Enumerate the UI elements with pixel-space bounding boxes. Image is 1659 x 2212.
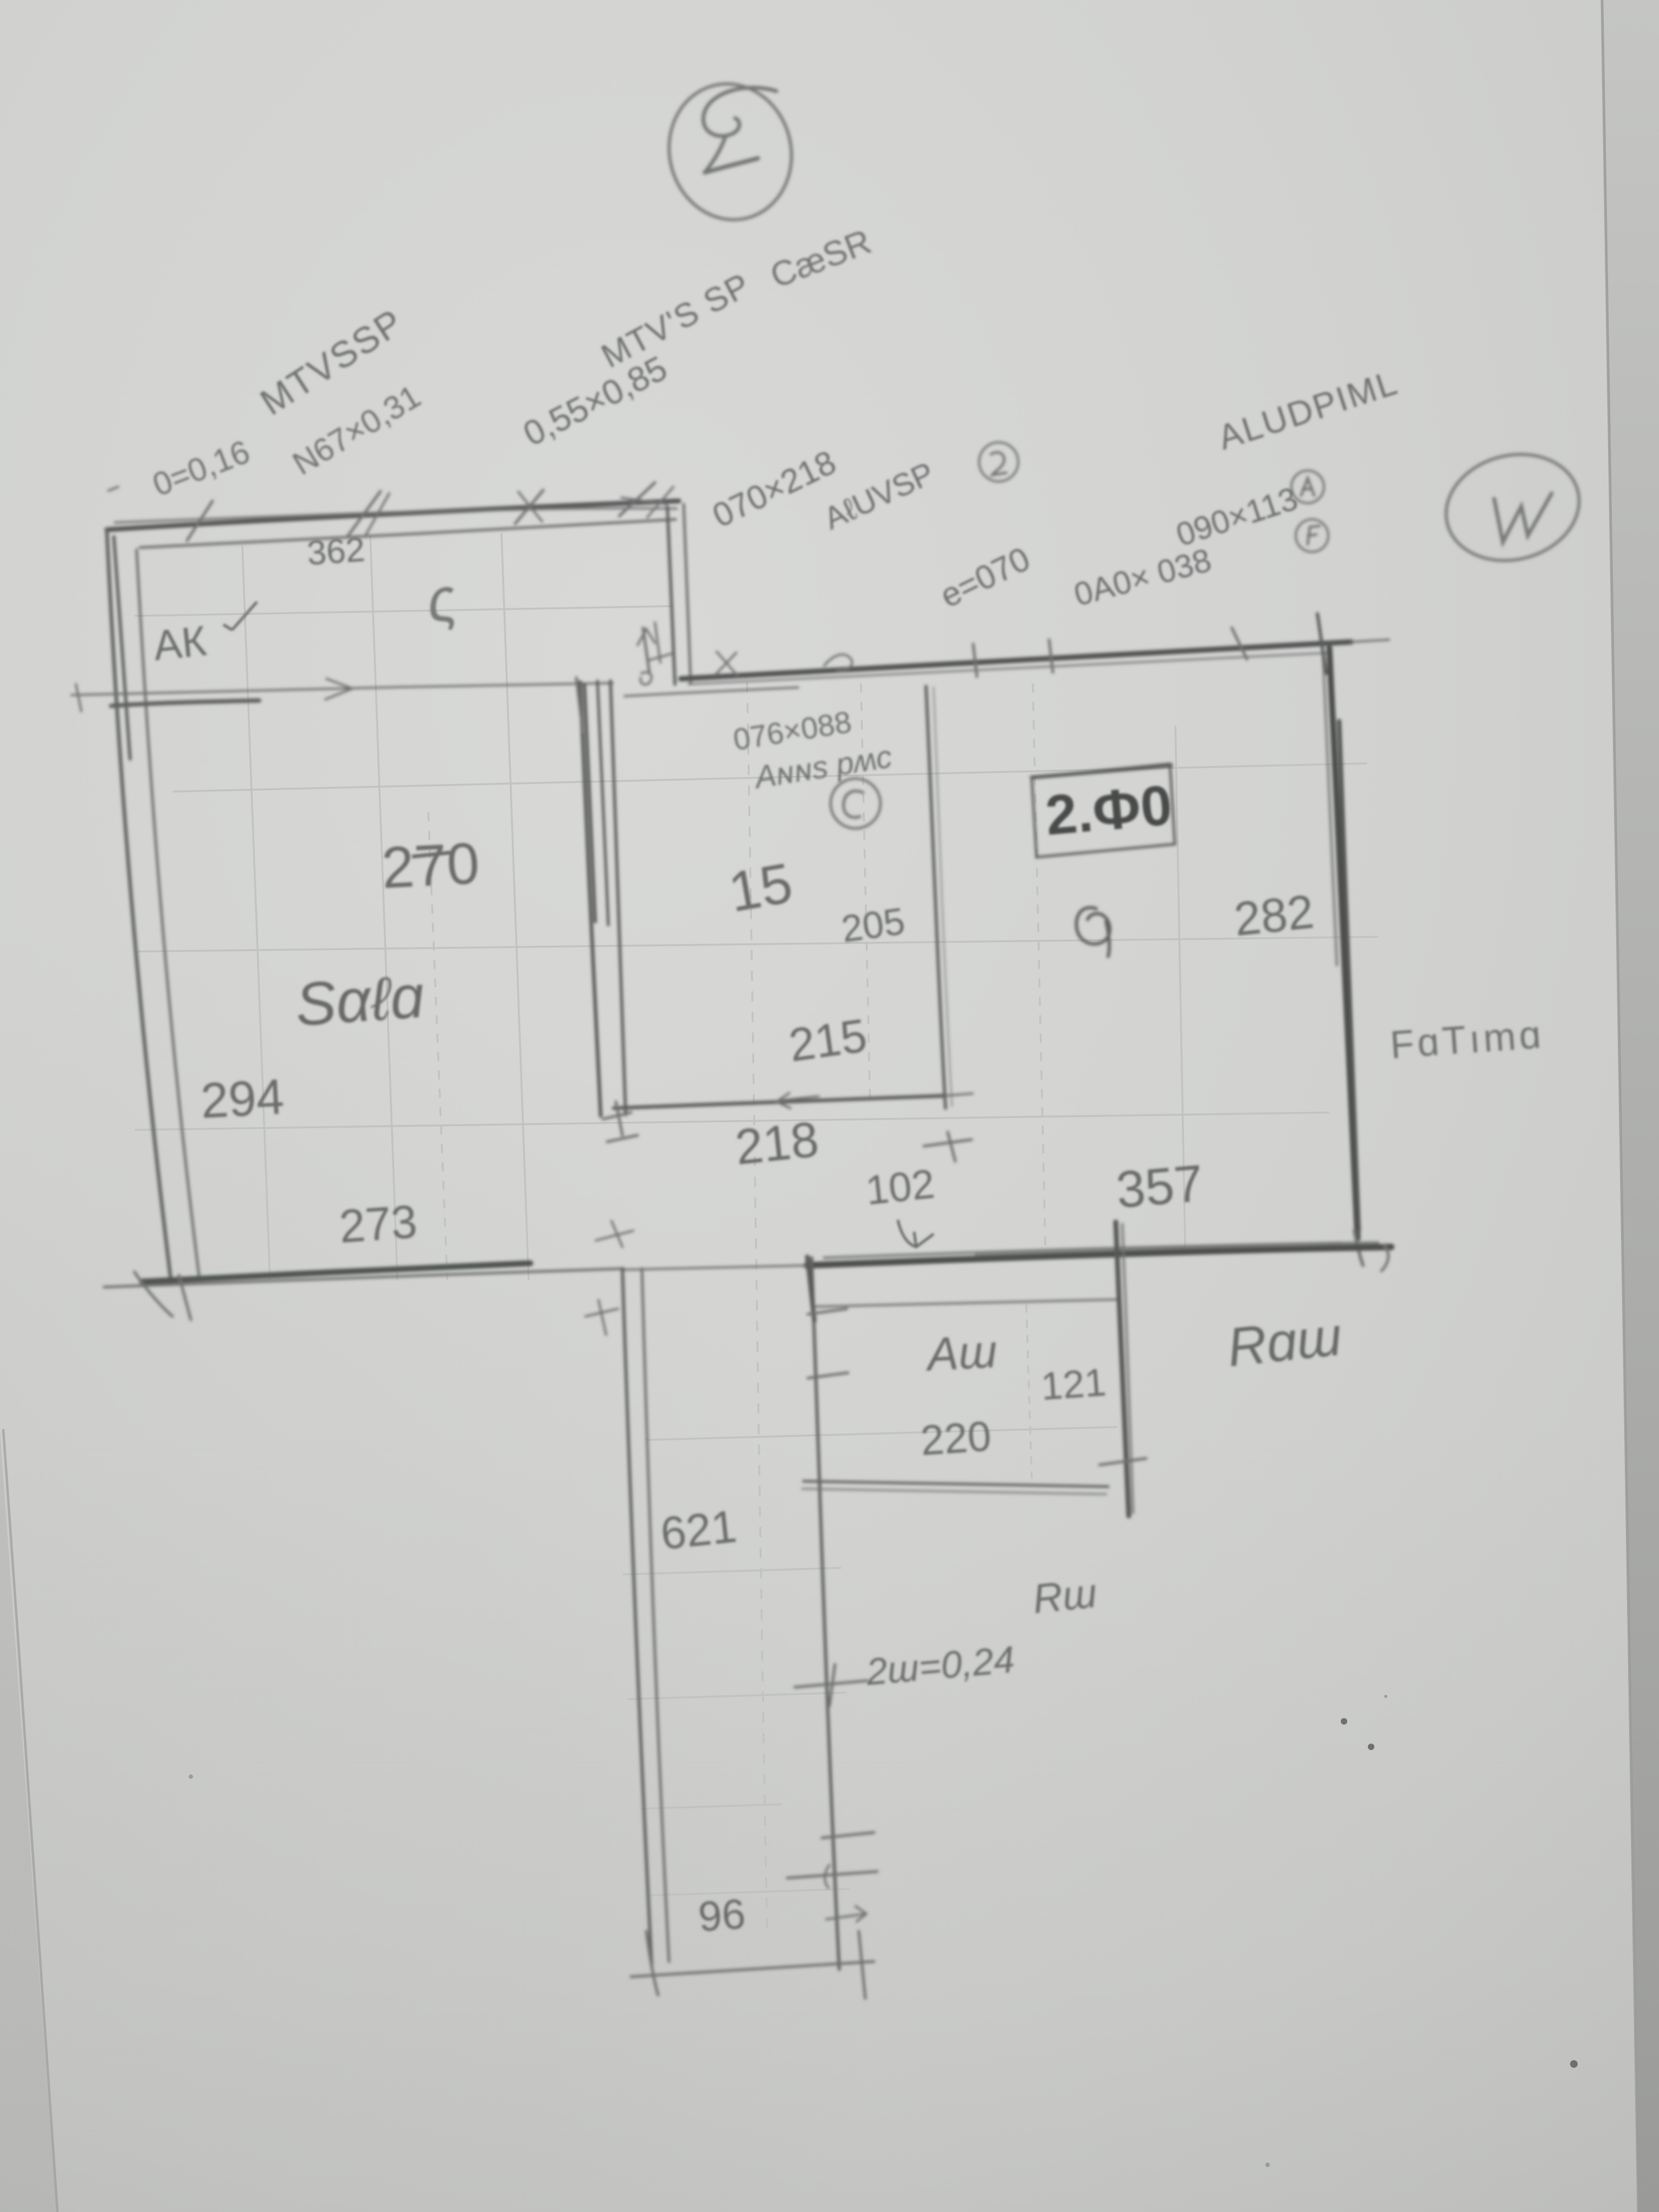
svg-text:Aɯ: Aɯ <box>923 1325 999 1381</box>
svg-text:Sαℓɑ: Sαℓɑ <box>293 962 426 1039</box>
svg-text:205: 205 <box>839 899 908 950</box>
svg-text:621: 621 <box>658 1501 739 1559</box>
svg-text:294: 294 <box>200 1069 286 1129</box>
svg-text:282: 282 <box>1232 884 1316 946</box>
svg-text:96: 96 <box>697 1889 747 1940</box>
svg-text:121: 121 <box>1040 1361 1108 1409</box>
svg-text:2.Ф0: 2.Ф0 <box>1043 774 1175 847</box>
svg-text:Rɑɯ: Rɑɯ <box>1225 1306 1345 1378</box>
svg-text:357: 357 <box>1114 1154 1206 1219</box>
svg-text:Rɯ: Rɯ <box>1031 1570 1099 1623</box>
svg-text:215: 215 <box>786 1009 870 1072</box>
svg-text:218: 218 <box>732 1111 821 1175</box>
svg-text:220: 220 <box>919 1412 993 1464</box>
svg-text:273: 273 <box>338 1195 419 1253</box>
svg-text:270: 270 <box>380 830 481 901</box>
svg-text:362: 362 <box>306 530 366 573</box>
svg-text:102: 102 <box>864 1161 937 1214</box>
svg-text:АК: АК <box>151 616 209 670</box>
svg-text:15: 15 <box>724 851 797 924</box>
